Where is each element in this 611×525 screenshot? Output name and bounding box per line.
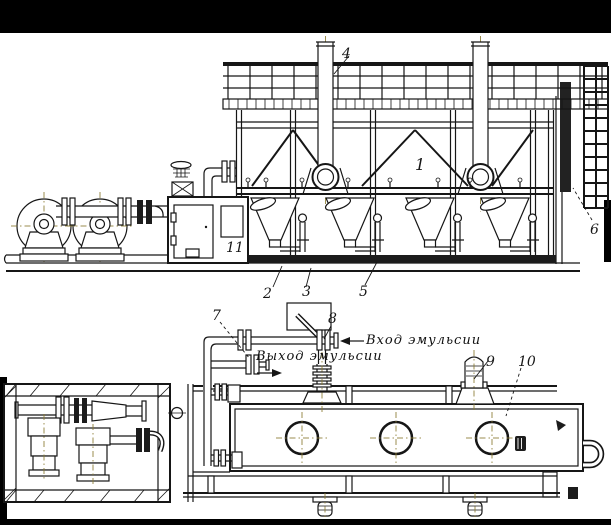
support-foot-1 [313, 493, 337, 520]
plan-motor-1 [28, 414, 60, 480]
plan-view [4, 350, 601, 520]
hopper-1 [249, 195, 313, 256]
callout-2: 2 [262, 286, 272, 302]
callout-4: 4 [341, 46, 351, 62]
plan-pump-skid [4, 384, 170, 502]
hopper-4 [479, 195, 543, 256]
truss-frame [236, 122, 554, 194]
callout-8: 8 [328, 311, 337, 327]
tank-fitting [515, 436, 526, 451]
callout-7: 7 [212, 308, 221, 324]
hoppers [249, 195, 543, 256]
callout-3: 3 [302, 284, 311, 300]
callout-5: 5 [359, 284, 368, 300]
cabinet-elbow-pipe [204, 161, 237, 196]
callout-11: 11 [226, 240, 244, 256]
support-foot-2 [463, 493, 487, 520]
outlet-label: Выход эмульсии [255, 349, 383, 364]
plan-motor-2 [76, 424, 110, 485]
hopper-2 [324, 195, 388, 256]
machine-bottom-band [234, 255, 556, 263]
inlet-arrow [340, 337, 364, 345]
callout-10: 10 [518, 354, 536, 370]
inlet-label: Вход эмульсии [365, 333, 481, 348]
callout-9: 9 [486, 354, 495, 370]
side-elevation-view [5, 36, 609, 271]
platform-railing [223, 62, 608, 109]
scanned-figure-page: 1 2 3 4 5 6 7 8 9 10 11 Вход эмульсии Вы… [0, 0, 611, 525]
figure-drawing: 1 2 3 4 5 6 7 8 9 10 11 Вход эмульсии Вы… [0, 0, 611, 525]
callout-1: 1 [415, 155, 425, 174]
access-ladder [584, 66, 608, 208]
cabinet-vent [171, 162, 193, 197]
callout-6: 6 [590, 222, 599, 238]
hopper-3 [404, 195, 468, 256]
